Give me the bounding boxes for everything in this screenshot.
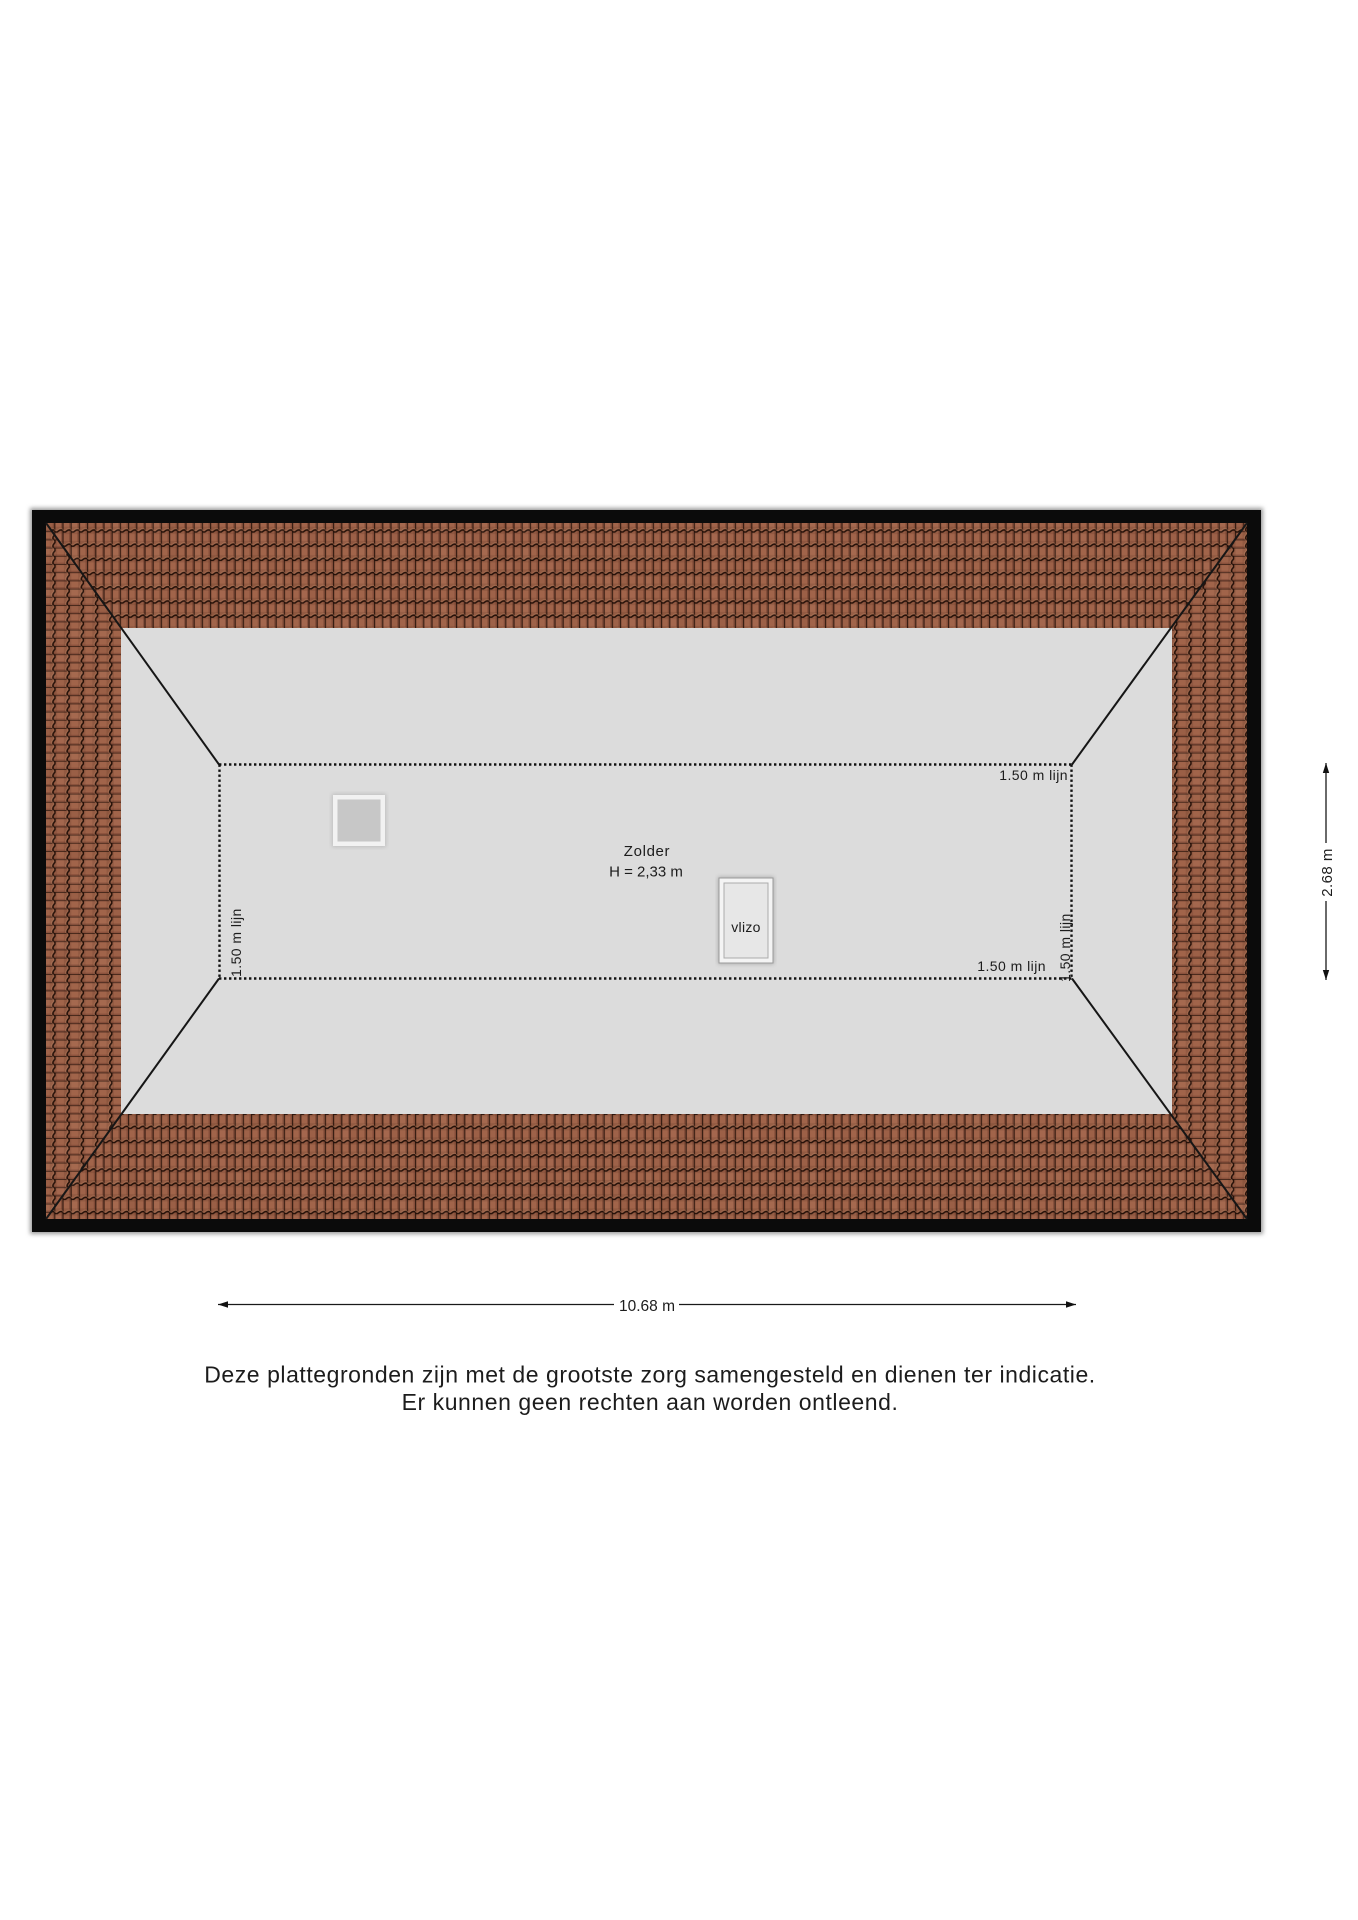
svg-text:1.50 m lijn: 1.50 m lijn bbox=[228, 908, 244, 977]
svg-text:Deze plattegronden zijn met de: Deze plattegronden zijn met de grootste … bbox=[204, 1362, 1096, 1388]
svg-text:H = 2,33 m: H = 2,33 m bbox=[609, 864, 683, 881]
svg-text:1.50 m lijn: 1.50 m lijn bbox=[1057, 913, 1073, 982]
svg-text:Er kunnen geen rechten aan wor: Er kunnen geen rechten aan worden ontlee… bbox=[402, 1389, 899, 1415]
svg-text:Zolder: Zolder bbox=[624, 843, 670, 860]
svg-text:1.50 m lijn: 1.50 m lijn bbox=[977, 958, 1046, 974]
svg-text:vlizo: vlizo bbox=[731, 919, 761, 935]
svg-text:1.50 m lijn: 1.50 m lijn bbox=[999, 767, 1068, 783]
svg-text:10.68 m: 10.68 m bbox=[619, 1298, 675, 1315]
svg-text:2.68 m: 2.68 m bbox=[1319, 848, 1336, 897]
